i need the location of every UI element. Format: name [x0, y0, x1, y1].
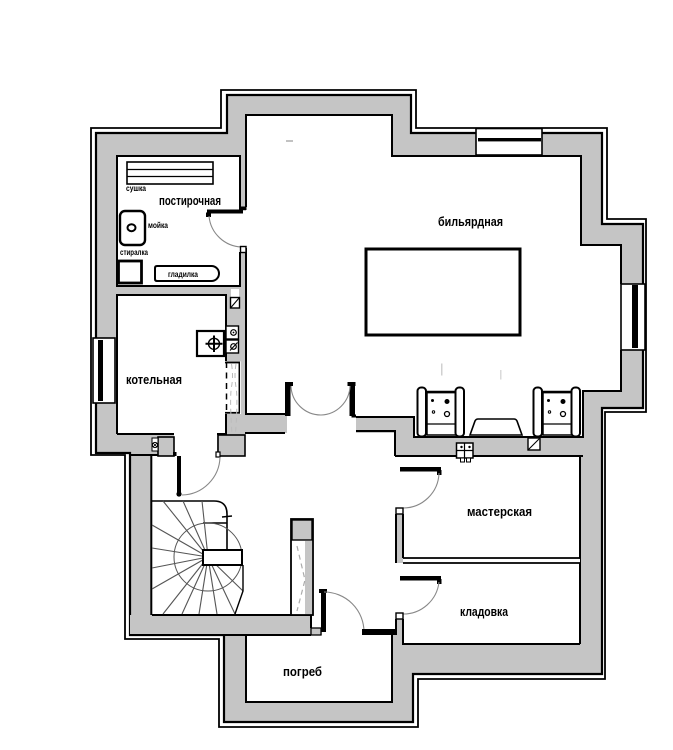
svg-text:погреб: погреб — [283, 664, 322, 679]
svg-text:котельная: котельная — [126, 372, 182, 387]
svg-text:кладовка: кладовка — [460, 604, 509, 619]
svg-text:постирочная: постирочная — [159, 193, 221, 208]
svg-text:стиралка: стиралка — [120, 247, 148, 257]
svg-text:сушка: сушка — [126, 183, 146, 193]
svg-text:мастерская: мастерская — [467, 504, 532, 519]
svg-text:мойка: мойка — [148, 220, 168, 230]
svg-text:бильярдная: бильярдная — [438, 214, 503, 229]
svg-text:гладилка: гладилка — [168, 269, 198, 279]
